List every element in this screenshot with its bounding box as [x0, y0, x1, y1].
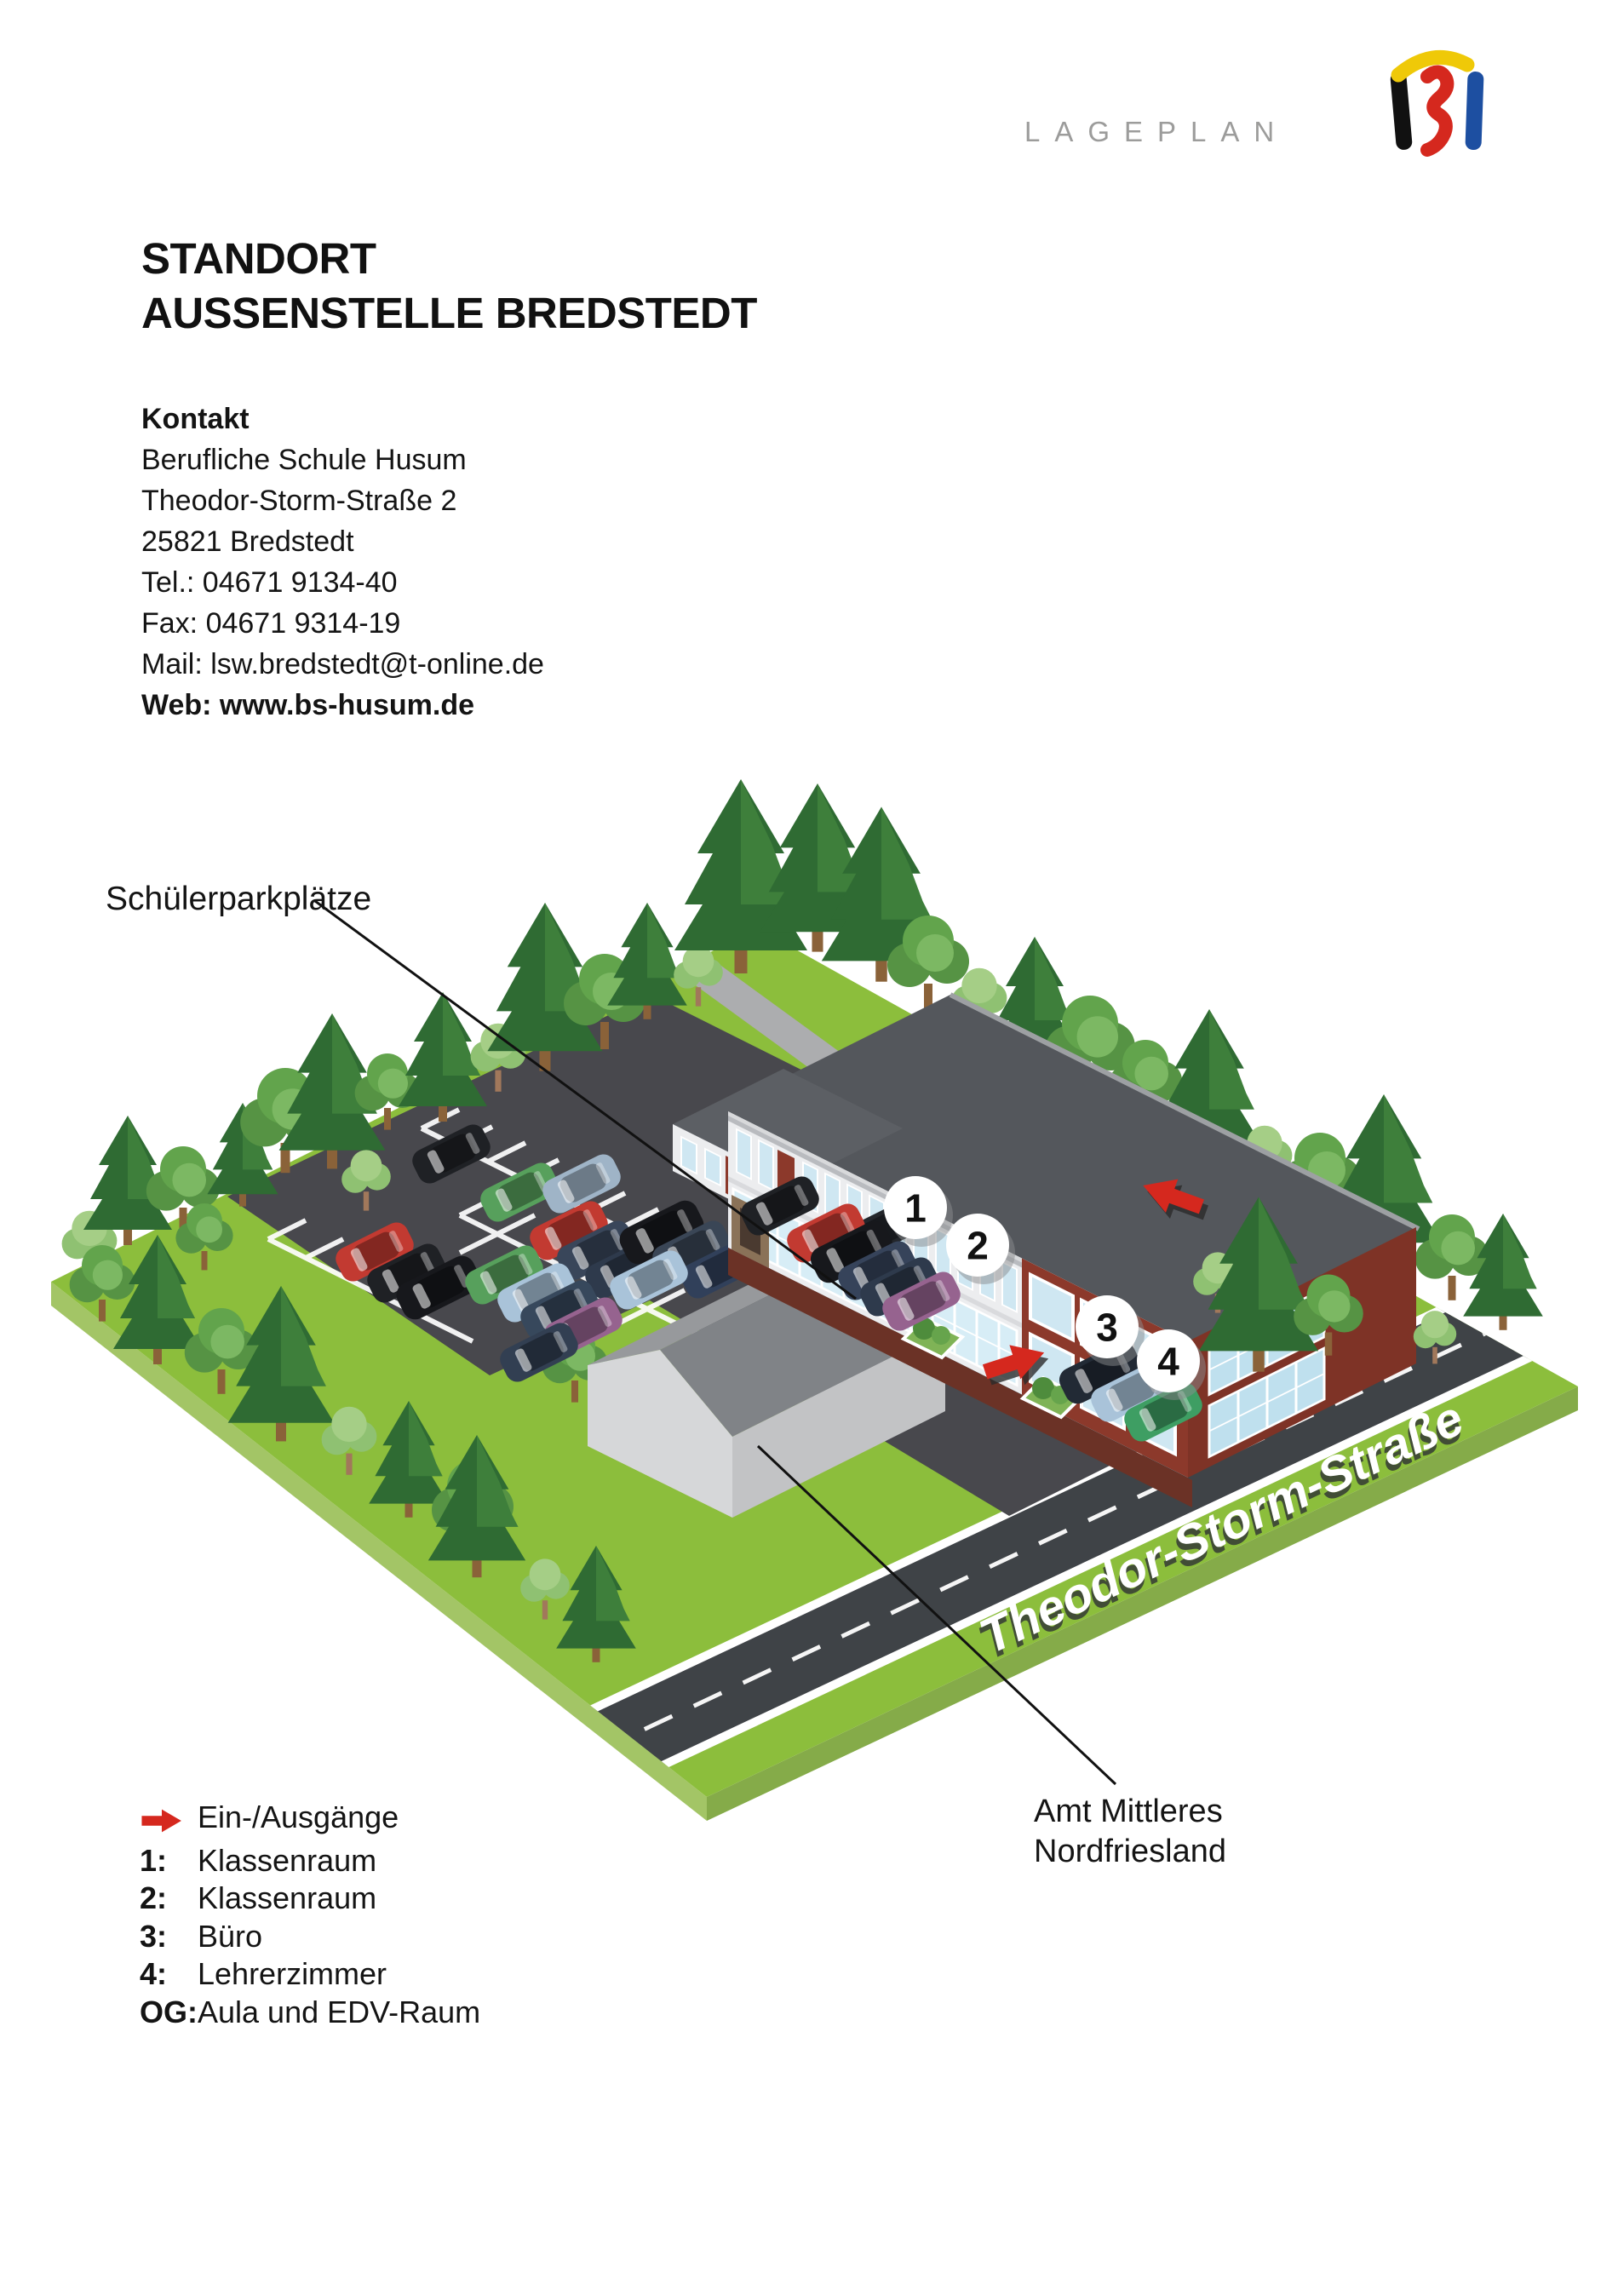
legend-label: Klassenraum [198, 1880, 480, 1918]
contact-city: 25821 Bredstedt [141, 521, 544, 562]
legend-row-entrances: Ein-/Ausgänge [140, 1799, 480, 1842]
bush-icon [932, 1326, 950, 1345]
logo-black-bar [1390, 71, 1413, 150]
legend-row-og: OG: Aula und EDV-Raum [140, 1994, 480, 2032]
legend-row-1: 1: Klassenraum [140, 1842, 480, 1880]
logo-red-squiggle [1427, 72, 1447, 150]
legend-entrances-label: Ein-/Ausgänge [198, 1799, 480, 1837]
legend-key: OG: [140, 1994, 198, 2032]
legend-label: Lehrerzimmer [198, 1955, 480, 1994]
legend: Ein-/Ausgänge 1: Klassenraum 2: Klassenr… [140, 1799, 480, 2032]
bs-husum-logo-icon [1385, 46, 1492, 157]
contact-heading: Kontakt [141, 399, 544, 439]
contact-school: Berufliche Schule Husum [141, 439, 544, 480]
contact-web: Web: www.bs-husum.de [141, 685, 544, 726]
logo-blue-bar [1465, 72, 1483, 151]
marker-number: 2 [967, 1224, 989, 1268]
legend-key: 1: [140, 1842, 198, 1880]
label-schuelerparkplaetze: Schülerparkplätze [106, 881, 371, 918]
marker-number: 4 [1157, 1340, 1179, 1384]
title-line-1: STANDORT [141, 232, 757, 286]
title-line-2: AUSSENSTELLE BREDSTEDT [141, 286, 757, 341]
legend-key: 4: [140, 1955, 198, 1994]
contact-street: Theodor-Storm-Straße 2 [141, 480, 544, 521]
legend-label: Büro [198, 1918, 480, 1956]
legend-row-4: 4: Lehrerzimmer [140, 1955, 480, 1994]
legend-key: 3: [140, 1918, 198, 1956]
page-title: STANDORT AUSSENSTELLE BREDSTEDT [141, 232, 757, 341]
legend-label: Aula und EDV-Raum [198, 1994, 480, 2032]
legend-row-2: 2: Klassenraum [140, 1880, 480, 1918]
lageplan-page: LAGEPLAN STANDORT AUSSENSTELLE BREDSTEDT… [0, 0, 1618, 2296]
contact-mail: Mail: lsw.bredstedt@t-online.de [141, 644, 544, 685]
legend-label: Klassenraum [198, 1842, 480, 1880]
label-amt-mittleres-nordfriesland: Amt Mittleres Nordfriesland [1034, 1792, 1226, 1872]
amt-label-line-2: Nordfriesland [1034, 1832, 1226, 1872]
site-map-illustration: Theodor-Storm-Straße Theodor-Storm-Straß… [0, 766, 1618, 1891]
marker-number: 1 [904, 1186, 927, 1231]
amt-label-line-1: Amt Mittleres [1034, 1792, 1226, 1832]
contact-fax: Fax: 04671 9314-19 [141, 603, 544, 644]
wordmark-lageplan: LAGEPLAN [1024, 116, 1288, 148]
contact-tel: Tel.: 04671 9134-40 [141, 562, 544, 603]
legend-row-3: 3: Büro [140, 1918, 480, 1956]
marker-number: 3 [1096, 1306, 1118, 1350]
legend-key: 2: [140, 1880, 198, 1918]
entrance-arrow-legend-icon [140, 1799, 198, 1842]
contact-block: Kontakt Berufliche Schule Husum Theodor-… [141, 399, 544, 726]
